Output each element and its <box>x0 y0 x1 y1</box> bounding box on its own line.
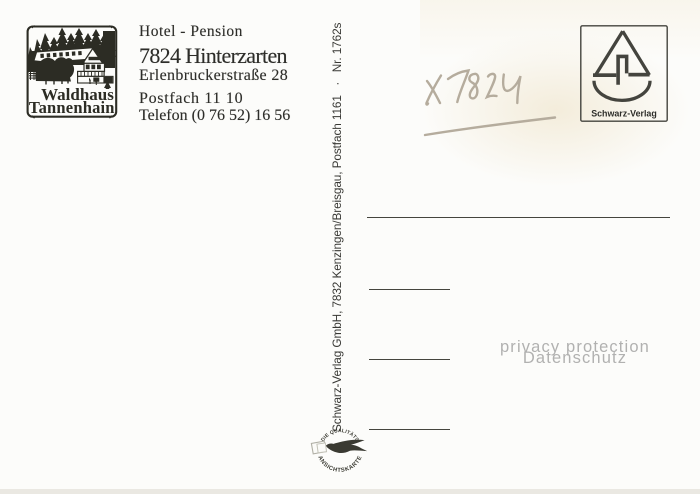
svg-text:ANSICHTSKARTE: ANSICHTSKARTE <box>316 455 363 474</box>
svg-text:Schwarz-Verlag: Schwarz-Verlag <box>591 109 657 119</box>
svg-text:Tannenhain: Tannenhain <box>29 98 115 117</box>
